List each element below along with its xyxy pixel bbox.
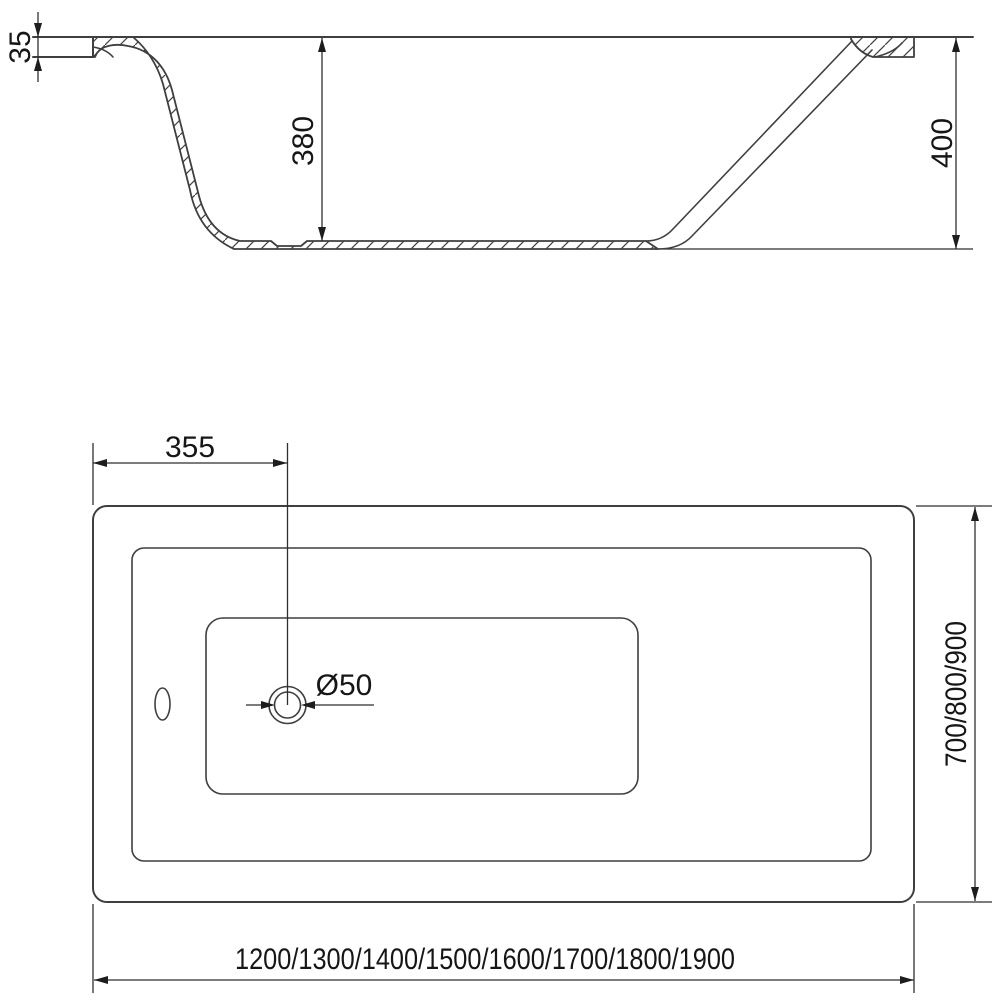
dim-inner-depth-label: 380 xyxy=(287,116,320,166)
arrow-left-icon xyxy=(301,701,315,709)
dim-drain-offset: 355 xyxy=(93,431,288,505)
arrow-left-icon xyxy=(93,459,107,467)
arrow-down-icon xyxy=(971,887,979,901)
dim-width-options: 700/800/900 xyxy=(916,506,992,902)
dim-drain-diameter-label: Ø50 xyxy=(316,669,373,702)
dim-drain-offset-label: 355 xyxy=(165,431,215,464)
arrow-right-icon xyxy=(261,701,275,709)
right-wall-inner-line xyxy=(646,41,852,241)
tub-rim-inner-edge xyxy=(132,548,871,861)
dim-width-options-label: 700/800/900 xyxy=(940,621,973,767)
dim-drain-diameter: Ø50 xyxy=(246,669,374,709)
bathtub-technical-drawing: 35 380 400 xyxy=(0,0,1000,1000)
arrow-left-icon xyxy=(94,976,108,984)
arrow-down-icon xyxy=(952,235,960,249)
arrow-right-icon xyxy=(273,459,287,467)
tub-outer-edge xyxy=(93,506,914,902)
right-wall-outer-line xyxy=(658,50,872,249)
dim-rim-thickness: 35 xyxy=(4,12,42,82)
dim-overall-height-label: 400 xyxy=(926,118,959,168)
arrow-right-icon xyxy=(900,976,914,984)
arrow-up-icon xyxy=(952,38,960,52)
dim-rim-thickness-label: 35 xyxy=(4,30,37,63)
arrow-down-icon xyxy=(318,227,326,241)
overflow-hole xyxy=(155,688,170,720)
side-section-view: 35 380 400 xyxy=(4,12,973,249)
right-rim-section xyxy=(851,37,914,57)
tub-shell-section xyxy=(93,37,658,249)
arrow-up-icon xyxy=(318,38,326,52)
dim-inner-depth: 380 xyxy=(287,38,326,241)
plan-view: 355 Ø50 700/800/900 1200/1300/1400/1 xyxy=(93,431,992,993)
dim-length-options: 1200/1300/1400/1500/1600/1700/1800/1900 xyxy=(93,904,914,993)
dim-length-options-label: 1200/1300/1400/1500/1600/1700/1800/1900 xyxy=(235,943,735,976)
dim-overall-height: 400 xyxy=(926,38,960,249)
arrow-up-icon xyxy=(971,507,979,521)
